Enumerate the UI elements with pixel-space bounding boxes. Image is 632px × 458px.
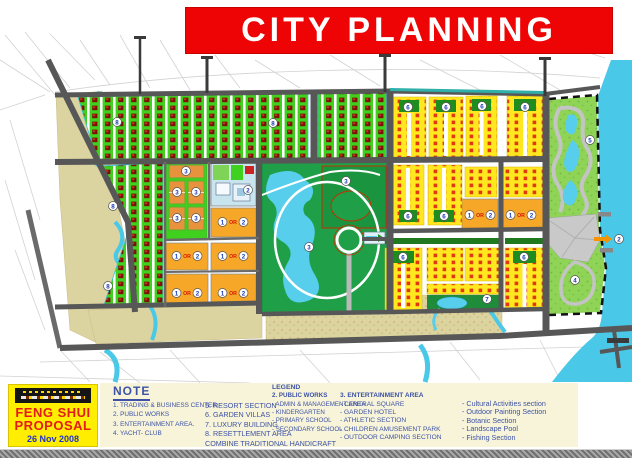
proposal-box: FENG SHUI PROPOSAL 26 Nov 2008 <box>8 384 98 447</box>
svg-text:1: 1 <box>175 290 179 297</box>
city-planning-slide: { "title": "CITY PLANNING", "proposal_bo… <box>0 0 632 457</box>
svg-text:2: 2 <box>196 253 200 260</box>
svg-text:2: 2 <box>489 212 493 219</box>
pier-2 <box>600 248 613 253</box>
svg-text:3: 3 <box>184 168 188 175</box>
svg-text:2: 2 <box>242 219 246 226</box>
svg-text:6: 6 <box>523 104 527 111</box>
map-label-3: 3 <box>192 188 201 197</box>
map-label-7: 7 <box>483 295 492 304</box>
svg-text:2: 2 <box>242 253 246 260</box>
svg-text:1: 1 <box>221 253 225 260</box>
svg-text:OR: OR <box>183 254 191 260</box>
company-logo <box>15 388 91 403</box>
legend-group-title: 3. ENTERTAINMENT AREA <box>340 392 441 401</box>
map-label-6: 6 <box>399 253 408 262</box>
title-banner: CITY PLANNING <box>185 7 613 54</box>
note-legend-panel: NOTE 1. TRADING & BUSINESS CENTER.2. PUB… <box>100 383 578 447</box>
text-line: 2. PUBLIC WORKS <box>113 410 219 419</box>
text-line: COMBINE TRADITIONAL HANDICRAFT <box>205 439 336 448</box>
svg-text:5: 5 <box>588 137 592 144</box>
svg-text:6: 6 <box>522 254 526 261</box>
map-label-3: 3 <box>182 167 191 176</box>
pier-1 <box>598 212 611 217</box>
svg-text:OR: OR <box>476 213 484 219</box>
svg-text:1: 1 <box>509 212 513 219</box>
text-line: 4. YACHT- CLUB <box>113 429 219 438</box>
stream-bottom-mid <box>420 345 428 382</box>
svg-text:2: 2 <box>242 290 246 297</box>
svg-text:4: 4 <box>573 277 577 284</box>
text-line: - CHILDREN AMUSEMENT PARK <box>340 426 441 434</box>
svg-text:1: 1 <box>221 290 225 297</box>
svg-text:2: 2 <box>530 212 534 219</box>
svg-text:6: 6 <box>401 254 405 261</box>
roundabout <box>337 228 361 252</box>
text-line: - OUTDOOR CAMPING SECTION <box>340 434 441 442</box>
text-line: - CENTRAL SQUARE <box>340 401 441 409</box>
map-label-8: 8 <box>113 118 122 127</box>
bridge-marks <box>607 338 629 343</box>
map-label-6: 6 <box>440 212 449 221</box>
proposal-date: 26 Nov 2008 <box>9 434 97 444</box>
svg-text:6: 6 <box>442 213 446 220</box>
svg-text:3: 3 <box>175 215 179 222</box>
legend-group-items: - CENTRAL SQUARE- GARDEN HOTEL- ATHLETIC… <box>340 401 441 443</box>
resettlement-top-mid <box>318 92 386 158</box>
stream-bottom-left <box>105 350 117 382</box>
map-label-8: 8 <box>109 202 118 211</box>
map-label-6: 6 <box>404 103 413 112</box>
legend-heading: LEGEND <box>272 384 300 391</box>
svg-text:2: 2 <box>617 236 621 243</box>
svg-text:3: 3 <box>194 215 198 222</box>
map-label-3: 3 <box>173 214 182 223</box>
svg-text:OR: OR <box>229 291 237 297</box>
svg-text:8: 8 <box>115 119 119 126</box>
map-label-6: 6 <box>521 103 530 112</box>
svg-text:OR: OR <box>517 213 525 219</box>
map-label-3: 3 <box>192 214 201 223</box>
page-title: CITY PLANNING <box>241 11 557 50</box>
map-label-5: 5 <box>586 136 595 145</box>
map-label-3: 3 <box>305 243 314 252</box>
svg-text:3: 3 <box>344 178 348 185</box>
svg-text:3: 3 <box>307 244 311 251</box>
legend-group-items: - Cultural Activities section- Outdoor P… <box>462 400 546 442</box>
master-plan-map: 8888666666667333333325412OR12OR12OR12OR1… <box>0 30 632 385</box>
map-label-8: 8 <box>269 119 278 128</box>
svg-text:8: 8 <box>111 203 115 210</box>
svg-text:OR: OR <box>183 291 191 297</box>
svg-text:8: 8 <box>271 120 275 127</box>
svg-text:7: 7 <box>485 296 489 303</box>
svg-text:6: 6 <box>444 104 448 111</box>
text-line: - Fishing Section <box>462 434 546 442</box>
svg-text:6: 6 <box>406 213 410 220</box>
proposal-line-2: PROPOSAL <box>9 418 97 433</box>
svg-text:1: 1 <box>221 219 225 226</box>
map-label-3: 3 <box>342 177 351 186</box>
svg-text:3: 3 <box>175 189 179 196</box>
legend-entertainment: 3. ENTERTAINMENT AREA - CENTRAL SQUARE- … <box>340 392 441 443</box>
hedge-strips <box>385 238 545 244</box>
text-line: 1. TRADING & BUSINESS CENTER. <box>113 401 219 410</box>
legend-sections: - Cultural Activities section- Outdoor P… <box>462 400 546 442</box>
map-label-6: 6 <box>404 212 413 221</box>
svg-text:OR: OR <box>229 220 237 226</box>
admin-management-block <box>211 163 256 206</box>
svg-text:1: 1 <box>175 253 179 260</box>
svg-text:2: 2 <box>246 187 250 194</box>
logo-decoration <box>23 391 83 393</box>
map-label-6: 6 <box>442 103 451 112</box>
note-column-1: 1. TRADING & BUSINESS CENTER.2. PUBLIC W… <box>113 401 219 439</box>
map-label-6: 6 <box>520 253 529 262</box>
note-heading: NOTE <box>113 384 150 401</box>
map-label-3: 3 <box>173 188 182 197</box>
logo-decoration-2 <box>21 396 85 399</box>
svg-text:3: 3 <box>194 189 198 196</box>
map-label-4: 4 <box>571 276 580 285</box>
text-line: - GARDEN HOTEL <box>340 409 441 417</box>
map-label-8: 8 <box>104 282 113 291</box>
svg-text:OR: OR <box>229 254 237 260</box>
svg-text:6: 6 <box>406 104 410 111</box>
map-label-2: 2 <box>244 186 253 195</box>
text-line: 3. ENTERTAINMENT AREA. <box>113 420 219 429</box>
luxury-pond <box>437 297 467 309</box>
map-label-6: 6 <box>478 102 487 111</box>
svg-text:1: 1 <box>468 212 472 219</box>
svg-text:6: 6 <box>480 103 484 110</box>
text-line: - ATHLETIC SECTION <box>340 417 441 425</box>
svg-text:8: 8 <box>106 283 110 290</box>
svg-text:2: 2 <box>196 290 200 297</box>
